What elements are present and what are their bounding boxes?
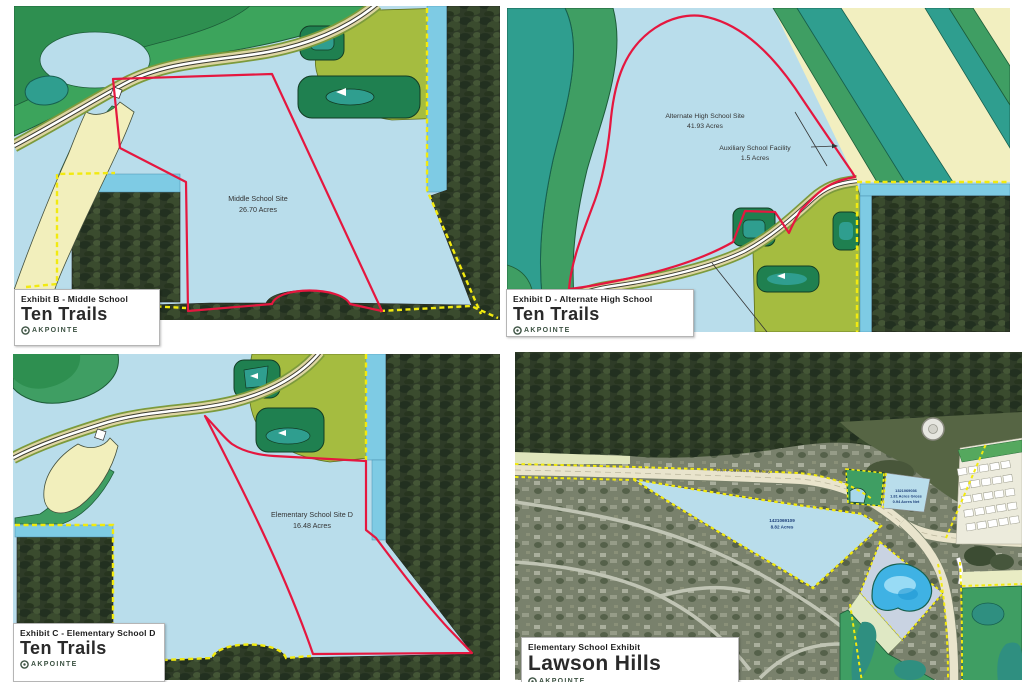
community-name: Ten Trails	[513, 305, 687, 324]
channel-strip	[860, 184, 1010, 196]
oakpointe-logo-text: AKPOINTE	[31, 661, 78, 668]
site-label-text: Alternate High School Site	[665, 113, 745, 120]
parcel-number-text: 1421069109	[769, 518, 795, 523]
oakpointe-logo: AKPOINTE	[20, 660, 158, 669]
site-acreage-text: 26.70 Acres	[239, 205, 277, 214]
channel-strip	[366, 354, 386, 460]
parcel-number-text: 1321069036	[895, 488, 917, 493]
exhibit-title-block-alternate-high-school: Exhibit D - Alternate High School Ten Tr…	[506, 289, 694, 337]
oakpointe-emblem-icon	[21, 326, 30, 335]
exhibit-map-alternate-high-school: Alternate High School Site 41.93 Acres A…	[505, 0, 1024, 332]
panel-alternate-high-school: Alternate High School Site 41.93 Acres A…	[505, 0, 1024, 332]
auxiliary-label-text: Auxiliary School Facility	[719, 145, 791, 152]
exhibit-map-lawson-hills: Future Lawson Parkway 1421069109 8.82 Ac…	[510, 352, 1024, 682]
exhibit-label: Exhibit D - Alternate High School	[513, 294, 687, 304]
auxiliary-acreage-text: 1.5 Acres	[741, 155, 770, 162]
exhibit-title-block-lawson-hills: Elementary School Exhibit Lawson Hills A…	[521, 637, 739, 682]
housing-plat	[956, 438, 1022, 544]
oakpointe-logo-text: AKPOINTE	[524, 327, 571, 334]
site-acreage-text: 16.48 Acres	[293, 521, 331, 530]
channel-strip	[427, 6, 447, 192]
site-label-text: Elementary School Site D	[271, 510, 353, 519]
oakpointe-emblem-icon	[20, 660, 29, 669]
scanned-exhibit-sheet: Middle School Site 26.70 Acres	[0, 0, 1024, 682]
panel-lawson-hills: Future Lawson Parkway 1421069109 8.82 Ac…	[510, 352, 1024, 682]
oakpointe-logo: AKPOINTE	[528, 677, 732, 682]
exhibit-title-block-elementary-school-d: Exhibit C - Elementary School D Ten Trai…	[13, 623, 165, 682]
community-name: Ten Trails	[20, 639, 158, 658]
aerial-inset	[872, 196, 1010, 332]
community-name: Ten Trails	[21, 305, 153, 324]
exhibit-map-middle-school: Middle School Site 26.70 Acres	[0, 0, 500, 322]
exhibit-label: Elementary School Exhibit	[528, 642, 732, 652]
exhibit-label: Exhibit B - Middle School	[21, 294, 153, 304]
main-parcel-label: 1421069109 8.82 Acres	[769, 518, 795, 530]
site-acreage-text: 41.93 Acres	[687, 123, 723, 130]
community-name: Lawson Hills	[528, 653, 732, 675]
parcel-acreage-text: 8.82 Acres	[771, 525, 794, 530]
aerial-inset	[17, 537, 113, 637]
oakpointe-logo-text: AKPOINTE	[32, 327, 79, 334]
exhibit-label: Exhibit C - Elementary School D	[20, 628, 158, 638]
oakpointe-emblem-icon	[513, 326, 522, 335]
site-label-text: Middle School Site	[228, 194, 288, 203]
parcel-gross-text: 1.81 Acres Gross	[890, 494, 922, 499]
oakpointe-logo-text: AKPOINTE	[539, 678, 586, 682]
oakpointe-emblem-icon	[528, 677, 537, 682]
panel-middle-school: Middle School Site 26.70 Acres	[0, 0, 500, 322]
parcel-net-text: 0.94 Acres Net	[893, 499, 920, 504]
exhibit-title-block-middle-school: Exhibit B - Middle School Ten Trails AKP…	[14, 289, 160, 346]
oakpointe-logo: AKPOINTE	[513, 326, 687, 335]
oakpointe-logo: AKPOINTE	[21, 326, 153, 335]
